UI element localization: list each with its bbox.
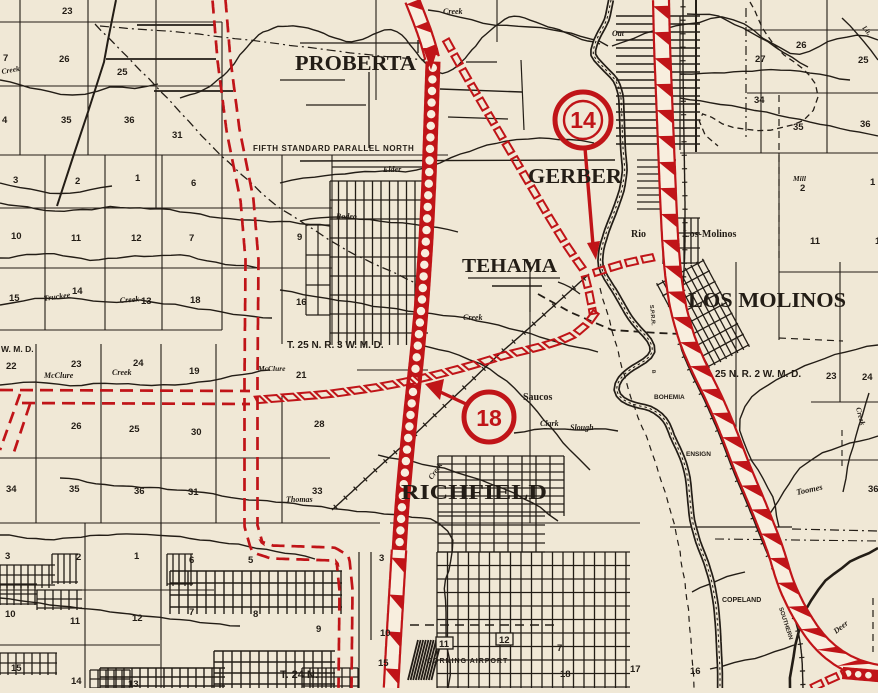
svg-text:23: 23 — [71, 359, 82, 370]
svg-text:Creek: Creek — [112, 368, 132, 377]
svg-text:PROBERTA: PROBERTA — [295, 51, 416, 75]
svg-text:21: 21 — [296, 370, 307, 381]
svg-text:8: 8 — [253, 609, 258, 620]
svg-text:23: 23 — [826, 371, 837, 382]
svg-text:Los-Molinos: Los-Molinos — [683, 229, 736, 240]
svg-text:3: 3 — [379, 553, 384, 564]
svg-text:CORNING AIRPORT: CORNING AIRPORT — [427, 658, 508, 665]
svg-text:3: 3 — [13, 175, 18, 186]
svg-text:9: 9 — [316, 624, 321, 635]
svg-text:11: 11 — [71, 233, 82, 244]
svg-text:Saucos: Saucos — [523, 392, 553, 403]
svg-text:36: 36 — [134, 486, 145, 497]
svg-text:COPELAND: COPELAND — [722, 597, 761, 604]
svg-text:Rio: Rio — [631, 229, 646, 240]
svg-text:24: 24 — [862, 372, 873, 383]
svg-text:11: 11 — [439, 639, 450, 650]
svg-text:McClure: McClure — [257, 364, 286, 373]
svg-text:36: 36 — [124, 115, 135, 126]
svg-text:7: 7 — [3, 53, 8, 64]
svg-text:Creek: Creek — [463, 313, 483, 322]
svg-text:12: 12 — [132, 613, 143, 624]
svg-text:34: 34 — [754, 95, 765, 106]
svg-text:4: 4 — [2, 115, 8, 126]
svg-text:26: 26 — [59, 54, 70, 65]
svg-text:W. M. D.: W. M. D. — [1, 344, 34, 354]
svg-text:ENSIGN: ENSIGN — [686, 451, 711, 458]
svg-text:McClure: McClure — [43, 371, 74, 380]
svg-text:31: 31 — [172, 130, 183, 141]
svg-text:15: 15 — [378, 658, 389, 669]
svg-text:7: 7 — [189, 607, 194, 618]
svg-text:25: 25 — [129, 424, 140, 435]
svg-text:15: 15 — [9, 293, 20, 304]
svg-text:TEHAMA: TEHAMA — [462, 255, 558, 277]
svg-text:T. 25 N. R. 3 W. M. D.: T. 25 N. R. 3 W. M. D. — [287, 340, 384, 351]
svg-text:10: 10 — [5, 609, 16, 620]
svg-text:3: 3 — [5, 551, 10, 562]
svg-text:11: 11 — [810, 236, 821, 247]
svg-text:2: 2 — [800, 183, 805, 194]
svg-text:35: 35 — [69, 484, 80, 495]
svg-text:36: 36 — [868, 484, 878, 495]
svg-text:14: 14 — [72, 286, 83, 297]
svg-text:23: 23 — [62, 6, 73, 17]
svg-text:10: 10 — [380, 628, 391, 639]
svg-text:2: 2 — [76, 552, 81, 563]
svg-text:27: 27 — [755, 54, 766, 65]
svg-text:28: 28 — [314, 419, 325, 430]
svg-text:14: 14 — [570, 107, 596, 133]
svg-text:BOHEMIA: BOHEMIA — [654, 394, 685, 401]
svg-text:13: 13 — [128, 679, 139, 688]
svg-text:33: 33 — [312, 486, 323, 497]
svg-text:12: 12 — [131, 233, 142, 244]
svg-text:GERBER: GERBER — [528, 164, 623, 188]
svg-text:12: 12 — [499, 635, 510, 646]
svg-text:2: 2 — [75, 176, 80, 187]
svg-text:Elder: Elder — [382, 165, 402, 174]
svg-text:34: 34 — [6, 484, 17, 495]
svg-text:Slough: Slough — [570, 423, 594, 432]
svg-text:6: 6 — [191, 178, 196, 189]
svg-text:36: 36 — [860, 119, 871, 130]
svg-text:17: 17 — [630, 664, 641, 675]
svg-text:7: 7 — [189, 233, 194, 244]
svg-text:35: 35 — [793, 122, 804, 133]
svg-text:Mill: Mill — [792, 174, 807, 183]
svg-text:16: 16 — [296, 297, 307, 308]
svg-text:16: 16 — [690, 666, 701, 677]
svg-text:9: 9 — [297, 232, 302, 243]
svg-text:22: 22 — [6, 361, 17, 372]
svg-text:30: 30 — [191, 427, 202, 438]
svg-text:1: 1 — [870, 177, 876, 188]
svg-text:Oat: Oat — [612, 29, 625, 38]
svg-text:35: 35 — [61, 115, 72, 126]
svg-text:18: 18 — [560, 669, 571, 680]
svg-text:14: 14 — [71, 676, 82, 687]
svg-text:Creek: Creek — [443, 7, 463, 16]
svg-text:6: 6 — [189, 555, 194, 566]
svg-text:25: 25 — [858, 55, 869, 66]
svg-text:18: 18 — [476, 405, 502, 431]
svg-text:1: 1 — [135, 173, 141, 184]
svg-text:Thomas: Thomas — [286, 495, 313, 504]
svg-text:25 N. R. 2 W. M. D.: 25 N. R. 2 W. M. D. — [715, 369, 801, 380]
svg-text:5: 5 — [248, 555, 254, 566]
svg-text:RICHFIELD: RICHFIELD — [401, 480, 547, 504]
svg-text:19: 19 — [189, 366, 200, 377]
svg-text:25: 25 — [117, 67, 128, 78]
svg-text:7: 7 — [557, 643, 562, 654]
svg-text:Rodeo: Rodeo — [335, 212, 357, 221]
svg-text:Clark: Clark — [540, 419, 559, 428]
svg-text:11: 11 — [70, 616, 81, 627]
svg-text:T. 24 N.: T. 24 N. — [280, 669, 318, 681]
svg-text:26: 26 — [796, 40, 807, 51]
svg-text:18: 18 — [190, 295, 201, 306]
svg-text:26: 26 — [71, 421, 82, 432]
svg-text:Creek: Creek — [119, 294, 139, 305]
svg-text:13: 13 — [141, 296, 152, 307]
svg-text:1: 1 — [134, 551, 140, 562]
svg-text:31: 31 — [188, 487, 199, 498]
svg-text:15: 15 — [11, 663, 22, 674]
svg-text:24: 24 — [133, 358, 144, 369]
svg-text:FIFTH STANDARD PARALLEL NORTH: FIFTH STANDARD PARALLEL NORTH — [253, 144, 414, 153]
svg-text:LOS MOLINOS: LOS MOLINOS — [688, 288, 846, 312]
svg-text:10: 10 — [11, 231, 22, 242]
